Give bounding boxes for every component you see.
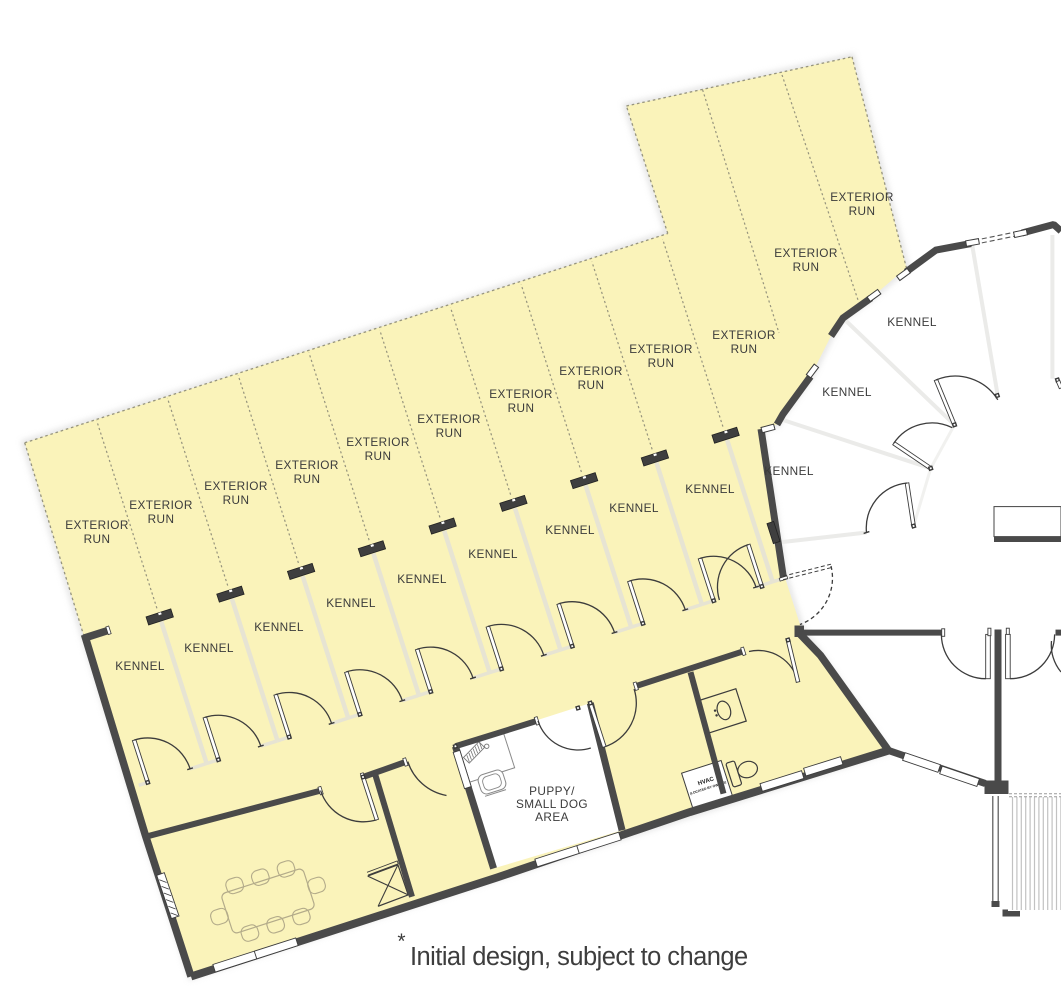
svg-text:AREA: AREA <box>535 810 569 824</box>
svg-text:EXTERIOR: EXTERIOR <box>65 518 129 532</box>
svg-text:KENNEL: KENNEL <box>822 385 872 399</box>
svg-text:EXTERIOR: EXTERIOR <box>489 387 553 401</box>
svg-text:EXTERIOR: EXTERIOR <box>346 435 410 449</box>
svg-text:RUN: RUN <box>793 260 820 274</box>
svg-text:EXTERIOR: EXTERIOR <box>129 498 193 512</box>
svg-text:EXTERIOR: EXTERIOR <box>204 479 268 493</box>
svg-text:RUN: RUN <box>648 356 675 370</box>
svg-text:EXTERIOR: EXTERIOR <box>629 342 693 356</box>
svg-text:KENNEL: KENNEL <box>545 523 595 537</box>
svg-text:KENNEL: KENNEL <box>887 315 937 329</box>
svg-text:RUN: RUN <box>365 449 392 463</box>
svg-text:RUN: RUN <box>84 532 111 546</box>
svg-text:PUPPY/: PUPPY/ <box>529 784 575 798</box>
svg-text:RUN: RUN <box>294 472 321 486</box>
svg-text:EXTERIOR: EXTERIOR <box>774 246 838 260</box>
svg-text:KENNEL: KENNEL <box>254 620 304 634</box>
svg-text:KENNEL: KENNEL <box>764 464 814 478</box>
svg-text:Initial design, subject to cha: Initial design, subject to change <box>410 943 748 971</box>
svg-text:EXTERIOR: EXTERIOR <box>417 412 481 426</box>
svg-text:EXTERIOR: EXTERIOR <box>559 364 623 378</box>
svg-text:EXTERIOR: EXTERIOR <box>275 458 339 472</box>
svg-text:EXTERIOR: EXTERIOR <box>712 328 776 342</box>
svg-text:RUN: RUN <box>849 204 876 218</box>
svg-text:KENNEL: KENNEL <box>326 596 376 610</box>
svg-text:KENNEL: KENNEL <box>609 501 659 515</box>
svg-text:RUN: RUN <box>436 426 463 440</box>
svg-text:RUN: RUN <box>223 493 250 507</box>
svg-text:KENNEL: KENNEL <box>397 572 447 586</box>
svg-text:KENNEL: KENNEL <box>184 641 234 655</box>
svg-text:RUN: RUN <box>578 378 605 392</box>
svg-text:KENNEL: KENNEL <box>685 482 735 496</box>
svg-text:KENNEL: KENNEL <box>468 547 518 561</box>
svg-text:RUN: RUN <box>148 512 175 526</box>
svg-text:EXTERIOR: EXTERIOR <box>830 190 894 204</box>
svg-text:*: * <box>397 930 405 953</box>
svg-text:RUN: RUN <box>508 401 535 415</box>
svg-text:KENNEL: KENNEL <box>115 659 165 673</box>
svg-text:RUN: RUN <box>731 342 758 356</box>
svg-text:SMALL DOG: SMALL DOG <box>516 797 588 811</box>
